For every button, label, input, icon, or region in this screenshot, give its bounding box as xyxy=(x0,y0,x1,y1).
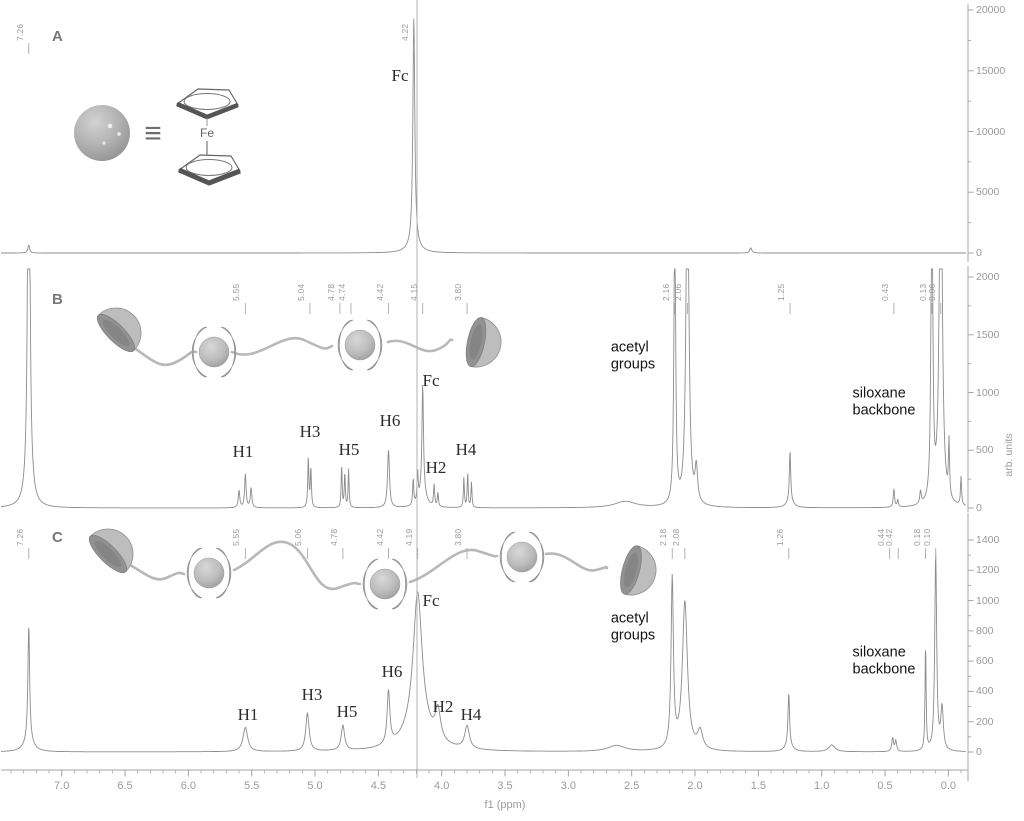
sphere-speckle xyxy=(102,141,105,144)
cyclodextrin-bead-icon xyxy=(192,327,236,377)
nmr-figure: ≡ Fe A B C f1 (ppm) arb. units 050001000… xyxy=(0,0,1024,821)
polymer-cartoons xyxy=(84,298,661,609)
polymer-chain-cartoon xyxy=(388,340,452,352)
cyclodextrin-bead-icon xyxy=(500,532,544,582)
cyclodextrin-cup-icon xyxy=(616,544,661,601)
iron-label: Fe xyxy=(200,126,214,140)
polymer-chain-cartoon xyxy=(234,542,360,589)
sphere-speckle xyxy=(117,132,121,136)
polymer-chain-cartoon xyxy=(410,550,497,582)
polymer-chain-cartoon xyxy=(128,344,196,365)
ferrocene-sphere-icon xyxy=(74,105,130,161)
polymer-chain-cartoon xyxy=(232,338,332,354)
spectrum-trace-b xyxy=(1,269,966,508)
equivalence-symbol: ≡ xyxy=(144,117,162,150)
cyclodextrin-cup-icon xyxy=(92,298,151,357)
cyclodextrin-bead-icon xyxy=(338,320,382,370)
polymer-chain-cartoon xyxy=(546,554,607,571)
cyclodextrin-bead-icon xyxy=(363,559,407,609)
cyclodextrin-bead-icon xyxy=(187,548,231,598)
spectrum-trace-c xyxy=(1,554,966,752)
ferrocene-structure-icon: Fe xyxy=(177,89,240,183)
spectra-canvas: ≡ Fe xyxy=(0,0,1024,821)
cyclodextrin-cup-icon xyxy=(462,316,505,372)
ferrocene-legend: ≡ Fe xyxy=(74,89,240,183)
sphere-speckle xyxy=(108,124,113,129)
